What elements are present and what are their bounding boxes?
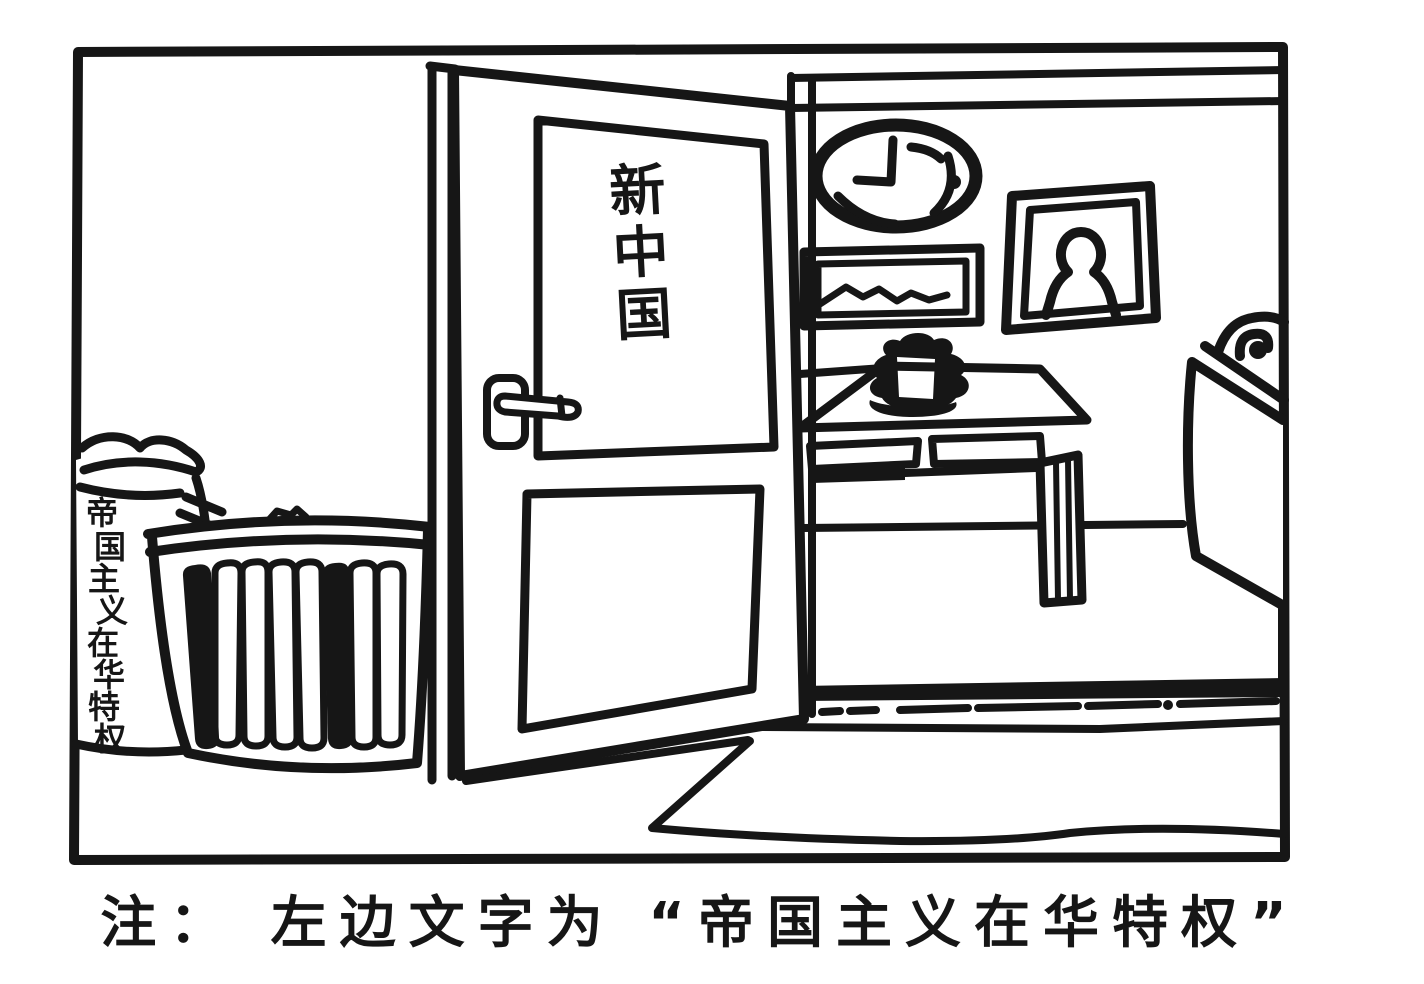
cabinet — [1188, 317, 1284, 678]
door: 新 中 国 — [454, 70, 804, 776]
table-leg — [1040, 455, 1082, 603]
landscape-picture — [804, 248, 980, 326]
dash-dot — [1163, 700, 1173, 710]
door-sign-text: 新 中 国 — [608, 158, 674, 350]
cabinet-scroll-curl — [1249, 341, 1267, 359]
clock-three-oclock-mark — [947, 175, 961, 189]
door-sign-char-1: 新 — [608, 158, 667, 226]
cartoon-panel: 帝 国 主 义 在 华 特 权 — [0, 0, 1424, 984]
table-apron-line — [905, 468, 1036, 473]
floor-junction-line — [803, 524, 1183, 528]
door-handle-lever — [497, 396, 578, 417]
baseboard-dashes — [822, 700, 1276, 712]
ceiling-lines — [791, 70, 1284, 108]
dash-line — [822, 701, 1276, 712]
door-sign-char-3: 国 — [614, 281, 673, 349]
sack-char-8: 权 — [93, 720, 126, 758]
cabinet-fill — [1188, 362, 1283, 604]
baseboard — [800, 678, 1284, 701]
sack-char-1: 帝 — [86, 494, 118, 532]
door-sign-char-2: 中 — [611, 220, 670, 288]
wastebasket — [148, 509, 430, 769]
wall-clock — [816, 125, 976, 227]
cartoon-drawing: 帝 国 主 义 在 华 特 权 — [0, 0, 1424, 984]
table-drawers — [810, 436, 1042, 469]
caption-text: 注： 左边文字为 “帝国主义在华特权” — [100, 891, 1300, 956]
portrait-picture — [1006, 186, 1156, 330]
